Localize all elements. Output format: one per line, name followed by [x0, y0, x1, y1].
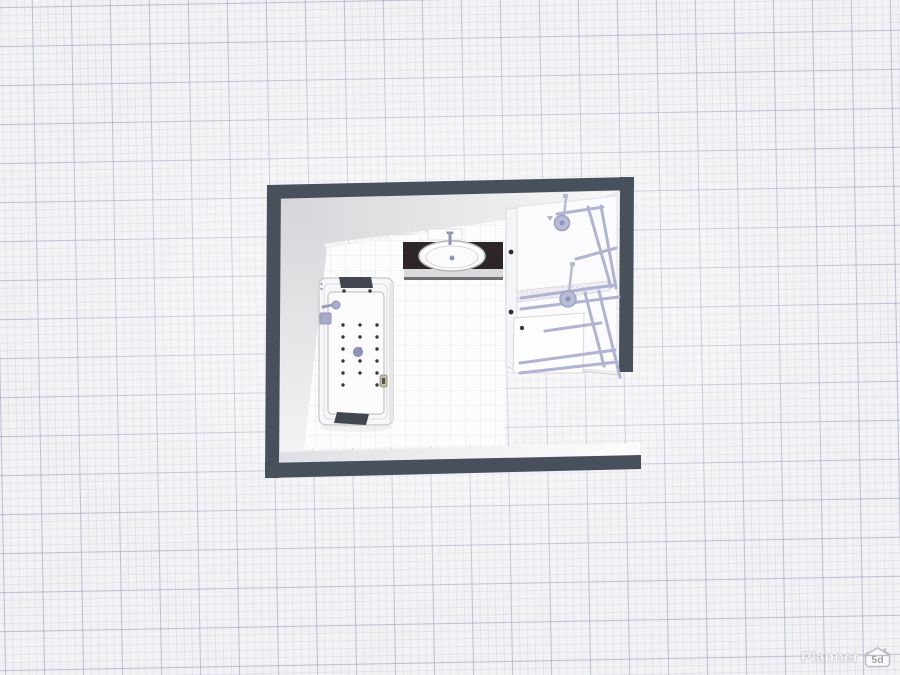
bathtub-drain [354, 348, 363, 357]
planner5d-logo-icon: 5d [864, 646, 891, 668]
watermark-brand-text: Planner [801, 649, 859, 666]
vanity-backsplash [428, 229, 462, 240]
cabinet-handle [520, 326, 524, 330]
planner-canvas[interactable]: Planner 5d [0, 0, 900, 675]
bathtub-side-face [389, 283, 393, 421]
shower-door-handle-bottom [509, 310, 514, 315]
shower-door-handle-top [509, 250, 514, 255]
bathtub[interactable] [319, 277, 393, 432]
sink-drain [450, 256, 455, 261]
bathtub-headrest-top [339, 277, 373, 288]
bathtub-handle [380, 375, 387, 387]
bathtub-headrest-bottom [334, 412, 369, 425]
wall-left[interactable] [265, 185, 281, 478]
watermark-badge-text: 5d [871, 654, 883, 666]
wall-right[interactable] [619, 177, 634, 372]
planner5d-watermark: Planner 5d [801, 646, 891, 668]
shower-unit[interactable] [506, 194, 620, 377]
floor-plan-scene[interactable] [0, 0, 900, 675]
vanity-front-edge [404, 277, 503, 280]
